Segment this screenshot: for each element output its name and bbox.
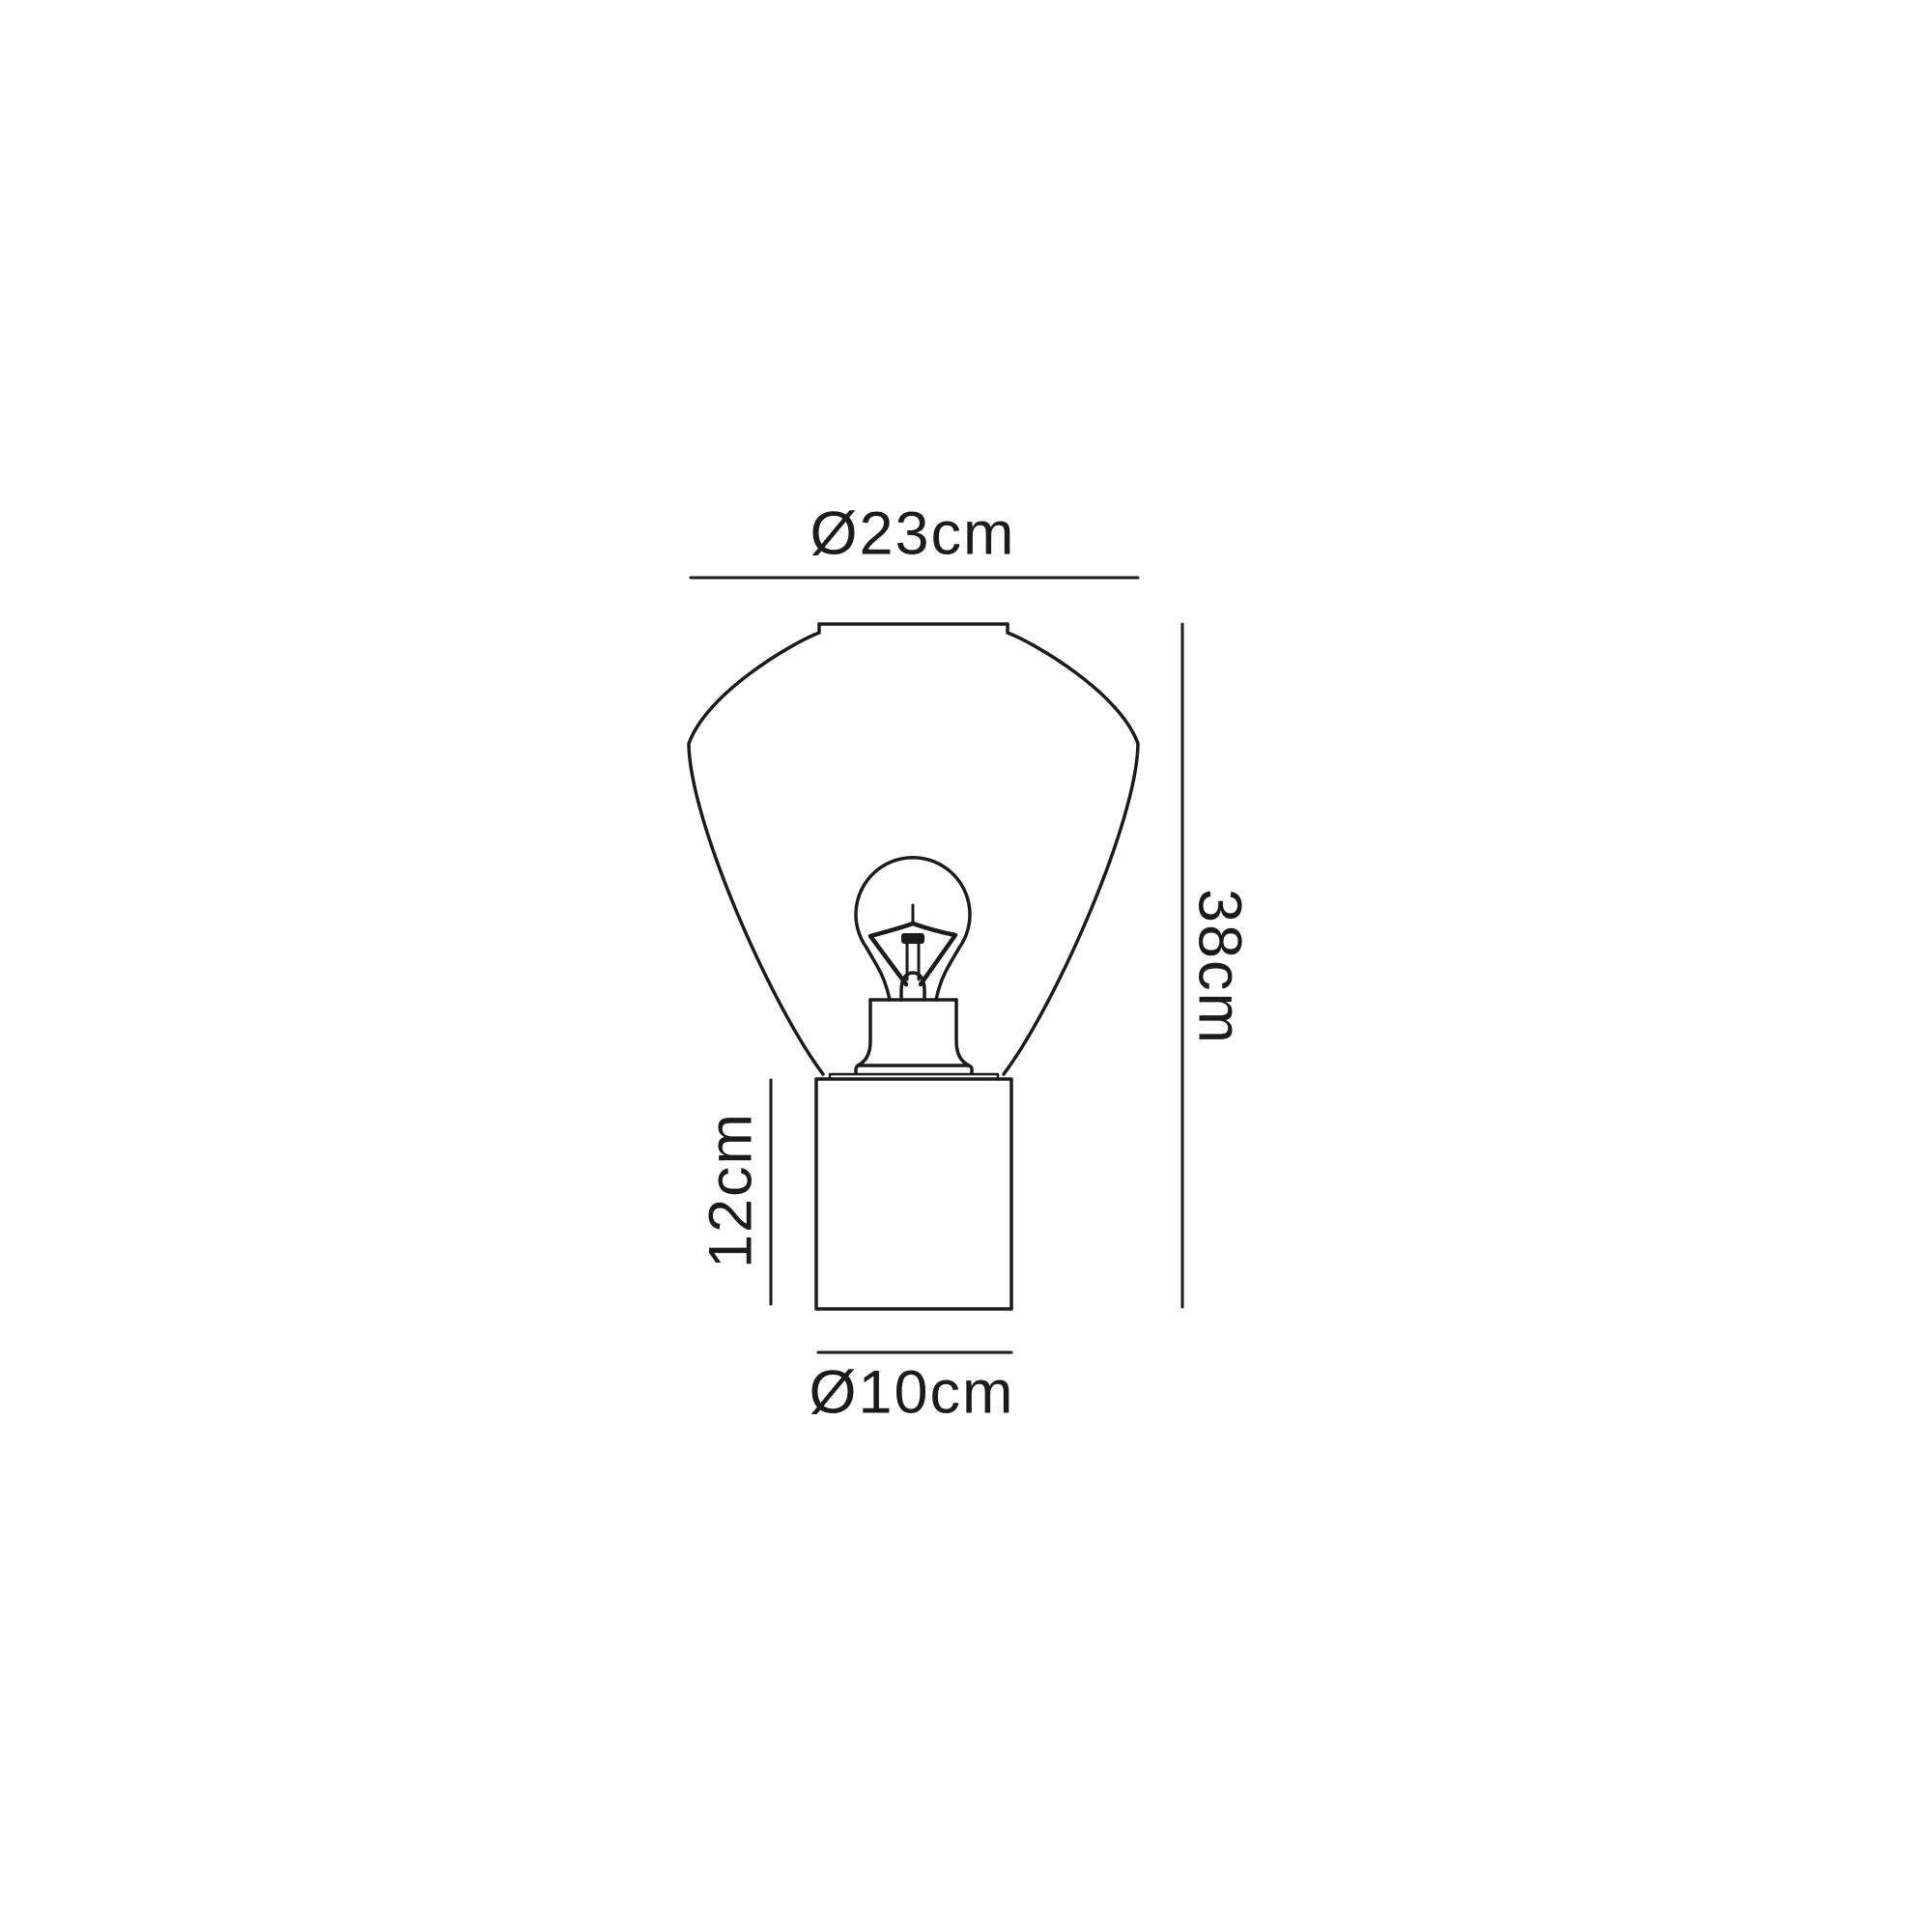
holder-right-side [956, 1000, 969, 1065]
bulb-filament [870, 905, 955, 1000]
dim-label-base-diameter: Ø10cm [809, 1363, 1014, 1424]
lamp-holder [856, 1000, 972, 1077]
base-cylinder [816, 1079, 1011, 1309]
dim-label-shade-diameter: Ø23cm [810, 504, 1015, 565]
bulb-glass-outline [856, 858, 970, 1000]
bulb [856, 858, 970, 1000]
shade-left-outline [689, 624, 823, 1074]
dim-label-base-height: 12cm [701, 1112, 762, 1268]
diagram-canvas: Ø23cm 38cm 12cm Ø10cm [0, 0, 1932, 1932]
holder-left-side [858, 1000, 870, 1065]
filament-bead [901, 933, 924, 944]
dim-label-total-height: 38cm [1189, 889, 1250, 1045]
shade-right-outline [1004, 624, 1138, 1074]
lamp-line-drawing [0, 0, 1932, 1932]
lamp-shade [689, 624, 1138, 1074]
lamp-base [816, 1074, 1011, 1309]
